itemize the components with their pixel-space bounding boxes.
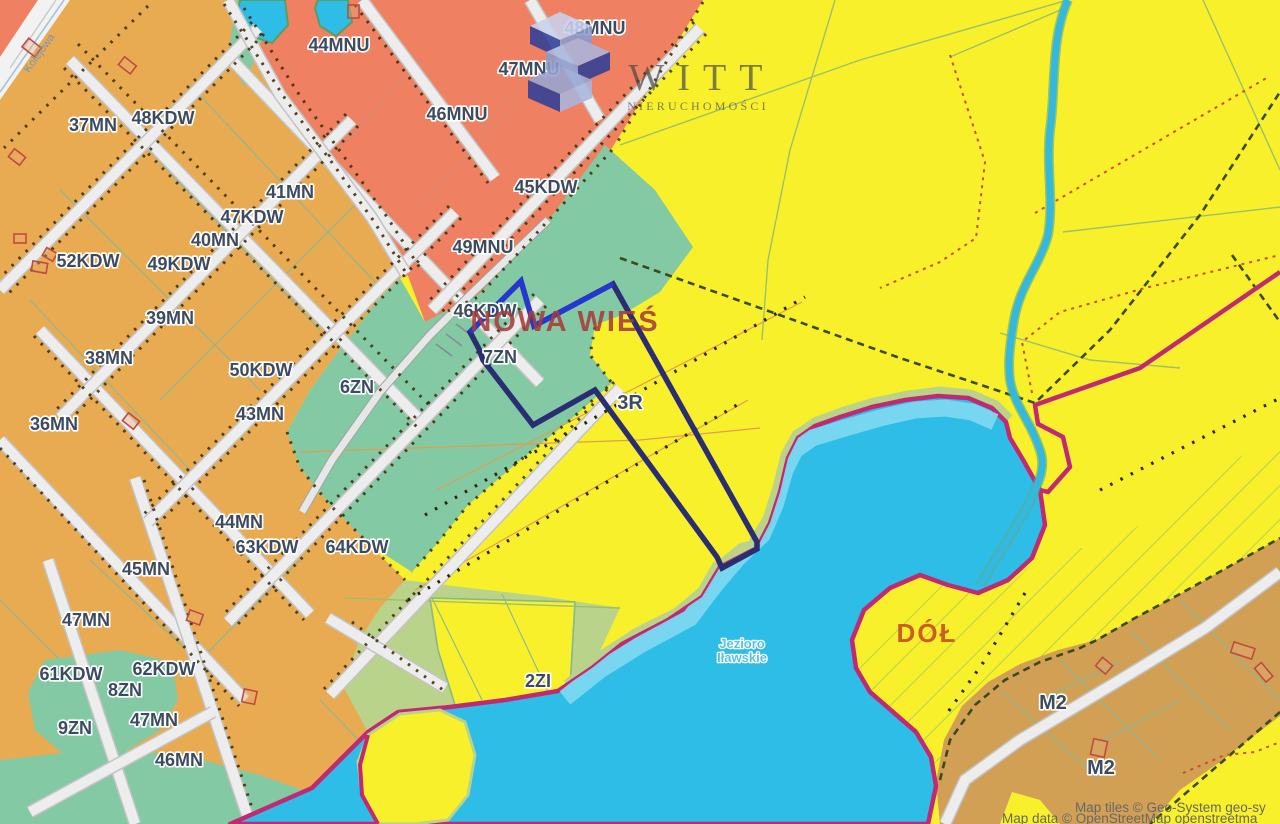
zone-label-6zn: 6ZN — [340, 377, 374, 397]
zone-label-7zn: 7ZN — [483, 347, 517, 367]
zone-label-45kdw: 45KDW — [514, 177, 577, 197]
zone-label-63kdw: 63KDW — [235, 537, 298, 557]
zoning-map[interactable]: 37MN 48KDW 41MN 47KDW 40MN 52KDW 49KDW 3… — [0, 0, 1280, 824]
zone-label-m2-a: M2 — [1039, 692, 1067, 714]
zone-label-37mn: 37MN — [69, 115, 117, 135]
lake-name-line1: Jezioro — [719, 636, 765, 651]
zone-label-64kdw: 64KDW — [325, 537, 388, 557]
town-label: NOWA WIEŚ — [470, 304, 659, 338]
zone-label-46mnu: 46MNU — [426, 104, 487, 124]
zone-label-49kdw: 49KDW — [147, 254, 210, 274]
zone-label-45mn: 45MN — [122, 559, 170, 579]
zone-label-44mn: 44MN — [215, 512, 263, 532]
zone-label-m2-b: M2 — [1087, 757, 1115, 779]
attribution-line2: Map data © OpenStreetMap openstreetma — [1002, 811, 1258, 824]
zone-label-39mn: 39MN — [146, 308, 194, 328]
zone-label-62kdw: 62KDW — [132, 659, 195, 679]
zone-label-50kdw: 50KDW — [229, 360, 292, 380]
zone-label-2zi: 2ZI — [525, 671, 551, 691]
brand-name: WITT — [629, 57, 776, 99]
zone-label-8zn: 8ZN — [108, 680, 142, 700]
zone-label-43mn: 43MN — [236, 404, 284, 424]
field-wedge — [430, 598, 575, 705]
zone-label-44mnu: 44MNU — [308, 35, 369, 55]
brand-subtitle: NIERUCHOMOŚCI — [627, 99, 769, 113]
zone-label-52kdw: 52KDW — [56, 251, 119, 271]
zone-label-47mn-a: 47MN — [62, 610, 110, 630]
zone-label-49mnu: 49MNU — [452, 237, 513, 257]
zone-label-47kdw: 47KDW — [220, 207, 283, 227]
zone-label-3r: 3R — [617, 392, 643, 414]
zone-label-41mn: 41MN — [266, 182, 314, 202]
zone-label-9zn: 9ZN — [58, 718, 92, 738]
zone-label-61kdw: 61KDW — [39, 664, 102, 684]
zone-label-40mn: 40MN — [191, 230, 239, 250]
zone-label-46mn: 46MN — [155, 750, 203, 770]
area-label-dol: DÓŁ — [897, 618, 958, 648]
lake-name-line2: Iławskie — [717, 650, 767, 665]
zone-label-36mn: 36MN — [30, 414, 78, 434]
zone-label-48kdw: 48KDW — [131, 108, 194, 128]
zone-label-47mn-b: 47MN — [130, 710, 178, 730]
zone-label-38mn: 38MN — [85, 348, 133, 368]
